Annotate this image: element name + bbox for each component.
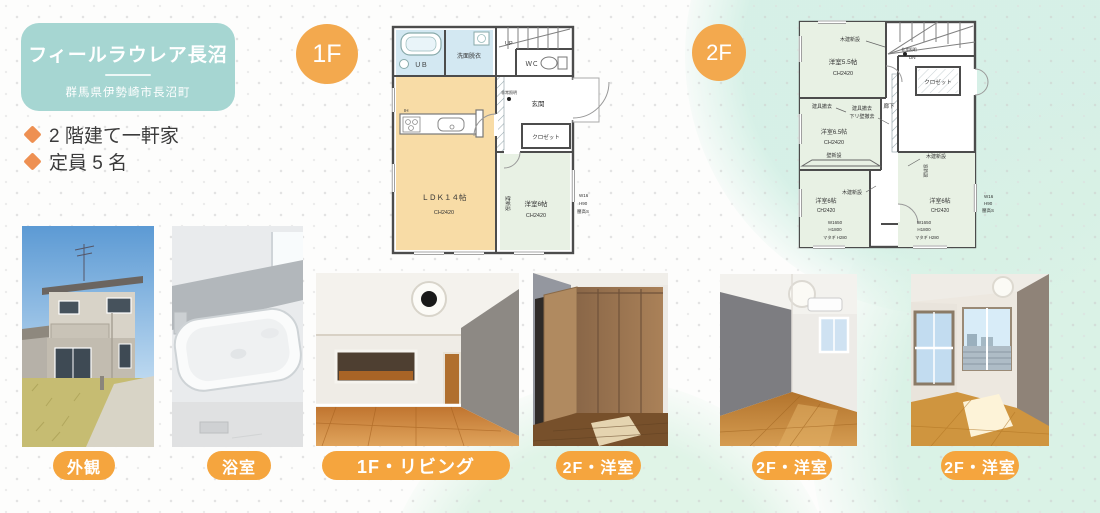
label-2f-room55: 洋室5.5帖 xyxy=(829,57,858,66)
label-2f-wood-new-top: 木建新設 xyxy=(840,36,860,43)
photo-exterior xyxy=(22,226,154,447)
label-room6-ch: CH2420 xyxy=(526,213,546,219)
floor-badge-2f: 2F xyxy=(692,24,746,81)
title-divider xyxy=(105,74,151,76)
caption-exterior: 外観 xyxy=(53,451,115,480)
label-ub: ＵＢ xyxy=(415,62,428,69)
label-2f-wood-new-left: 木建新設 xyxy=(842,189,862,196)
label-2f-fixture-removal-left: 建具撤去 xyxy=(812,103,832,110)
label-2f-room6l-w: W1650 xyxy=(828,220,843,225)
label-wall-new: 壁新設 xyxy=(504,196,511,211)
label-window-w: W16 xyxy=(579,193,589,198)
label-2f-room6r-matagi: マタギ H280 xyxy=(915,234,939,241)
photo-room2f-window xyxy=(720,274,857,446)
washer-icon xyxy=(474,32,489,45)
label-emergency-light: 非常照明 xyxy=(501,89,517,95)
label-2f-room55-ch: CH2420 xyxy=(833,71,853,77)
feature-label: 2 階建て一軒家 xyxy=(49,121,179,148)
caption-room2f-2: 2F・洋室 xyxy=(752,451,832,480)
label-2f-closet: クロゼット xyxy=(924,78,952,86)
label-2f-room65: 洋室6.5帖 xyxy=(821,128,847,136)
floor-plan-2f: 洋室5.5帖 CH2420 木建新設 非常照明 DN クロゼット 廊下 建具撤去… xyxy=(788,14,1028,262)
label-ldk-ch: CH2420 xyxy=(434,210,454,216)
label-2f-room6l-h: H1800 xyxy=(828,227,842,232)
label-closet: クロゼット xyxy=(532,133,560,141)
feature-item: 2 階建て一軒家 xyxy=(26,121,179,148)
room-ldk xyxy=(396,76,496,250)
label-2f-room6l-matagi: マタギ H280 xyxy=(823,234,847,241)
photo-room2f-sunny xyxy=(911,274,1049,446)
label-wc: ＷＣ xyxy=(526,61,539,68)
label-2f-window-new: 窓新設 xyxy=(922,164,929,178)
feature-list: 2 階建て一軒家 定員 5 名 xyxy=(26,121,179,175)
photo-bathroom xyxy=(172,226,303,447)
label-2f-fixture-removal: 建具撤去 xyxy=(852,105,872,112)
label-ldk: ＬＤＫ１４帖 xyxy=(422,192,467,202)
label-ih: IH xyxy=(404,108,409,113)
label-2f-window-koshi: 腰高S xyxy=(982,207,994,214)
label-2f-room6l-ch: CH2420 xyxy=(817,208,836,214)
floor-badge-1f: 1F xyxy=(296,24,358,84)
photo-room2f-closet xyxy=(533,273,668,446)
diamond-bullet-icon xyxy=(23,125,41,143)
label-2f-emergency: 非常照明 xyxy=(901,47,916,52)
diamond-bullet-icon xyxy=(23,152,41,170)
label-washroom: 洗面脱衣 xyxy=(457,52,481,60)
caption-bathroom: 浴室 xyxy=(207,451,271,480)
label-2f-wall-removal: 下リ壁撤去 xyxy=(849,113,874,120)
label-2f-window-h: H90 xyxy=(984,201,993,206)
caption-living: 1F・リビング xyxy=(322,451,510,480)
property-title-card: フィールラウレア長沼 群馬県伊勢崎市長沼町 xyxy=(21,23,235,111)
flyer-page: フィールラウレア長沼 群馬県伊勢崎市長沼町 2 階建て一軒家 定員 5 名 1F… xyxy=(0,0,1100,513)
label-2f-room6r: 洋室6帖 xyxy=(929,197,950,205)
kitchen-counter xyxy=(400,110,483,137)
feature-item: 定員 5 名 xyxy=(26,148,179,175)
label-2f-room6r-h: H1800 xyxy=(917,227,931,232)
toilet-icon xyxy=(541,57,567,69)
feature-label: 定員 5 名 xyxy=(49,148,127,175)
photo-living-1f xyxy=(316,273,519,446)
property-address: 群馬県伊勢崎市長沼町 xyxy=(21,84,235,100)
label-2f-room65-ch: CH2420 xyxy=(824,140,844,146)
label-up: UP xyxy=(505,41,513,47)
label-window-h: H90 xyxy=(579,201,588,206)
label-2f-room6r-w: W1650 xyxy=(917,220,932,225)
label-2f-dn: DN xyxy=(909,55,916,60)
label-window-koshi: 腰高S xyxy=(577,208,589,215)
label-genkan: 玄関 xyxy=(532,99,545,108)
caption-room2f-3: 2F・洋室 xyxy=(941,451,1019,480)
caption-room2f-1: 2F・洋室 xyxy=(556,451,641,480)
label-2f-wood-new-right: 木建新設 xyxy=(926,153,946,160)
label-2f-wall-new: 壁新設 xyxy=(826,152,841,159)
label-room6: 洋室6帖 xyxy=(524,199,548,208)
floor-plan-1f: ＵＢ 洗面脱衣 UP ＷＣ 玄関 非常照明 クロゼット IH ＬＤＫ１４帖 CH… xyxy=(380,18,612,262)
property-name: フィールラウレア長沼 xyxy=(21,40,235,67)
label-2f-hall: 廊下 xyxy=(883,102,895,110)
label-2f-room6l: 洋室6帖 xyxy=(815,197,836,205)
label-2f-room6r-ch: CH2420 xyxy=(931,208,950,214)
label-2f-window-w: W16 xyxy=(984,194,994,199)
